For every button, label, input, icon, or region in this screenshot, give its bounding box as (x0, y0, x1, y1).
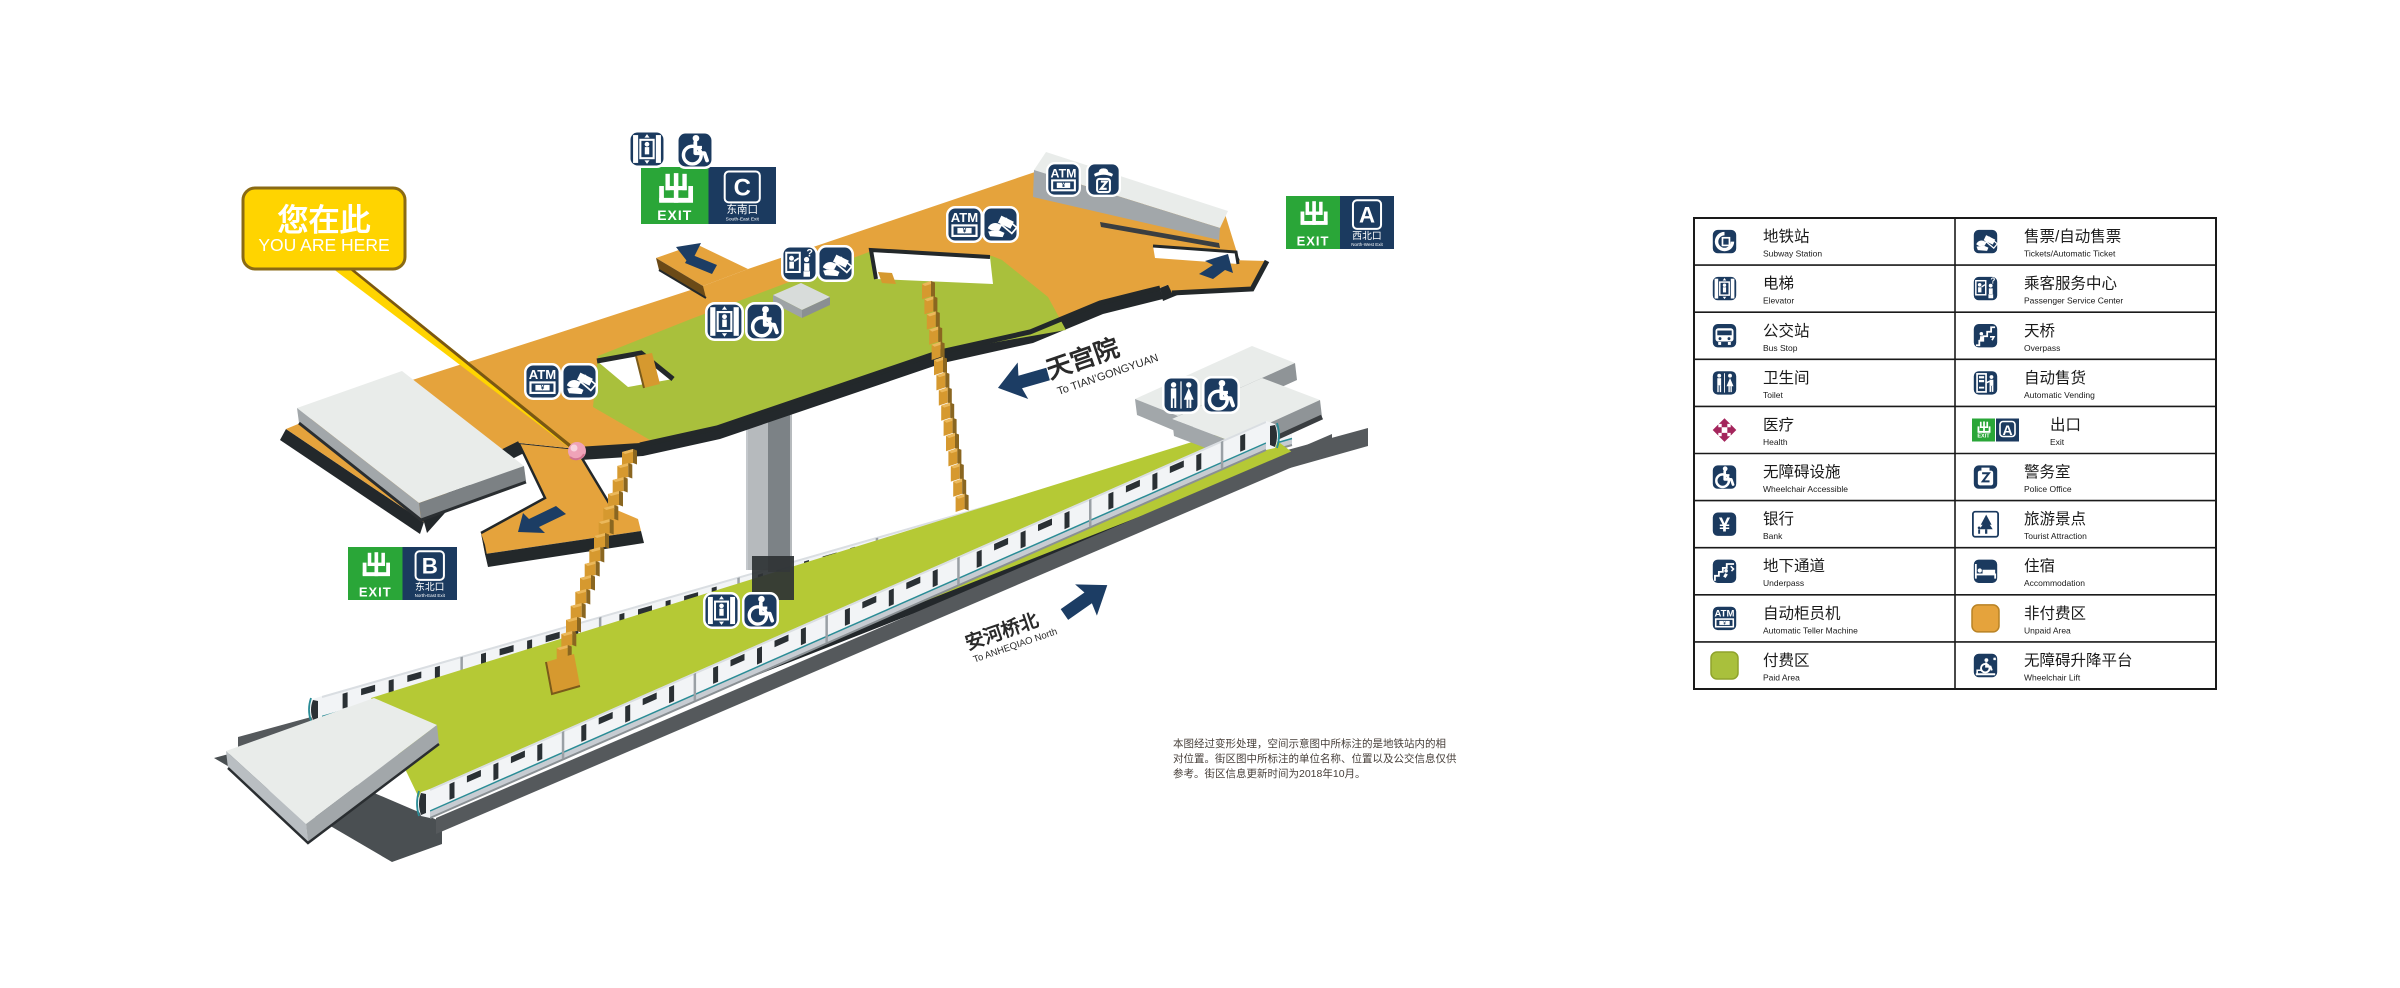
svg-text:自动柜员机: 自动柜员机 (1763, 604, 1841, 622)
svg-text:Toilet: Toilet (1763, 390, 1783, 400)
svg-text:医疗: 医疗 (1763, 416, 1794, 434)
svg-text:天桥: 天桥 (2024, 322, 2056, 340)
svg-text:卫生间: 卫生间 (1763, 369, 1810, 387)
svg-text:C: C (734, 175, 751, 202)
svg-text:Wheelchair Lift: Wheelchair Lift (2024, 673, 2081, 683)
svg-text:EXIT: EXIT (1297, 233, 1330, 248)
svg-text:North-West Exit: North-West Exit (1351, 242, 1383, 247)
svg-text:Automatic Teller Machine: Automatic Teller Machine (1763, 625, 1858, 635)
svg-text:公交站: 公交站 (1763, 322, 1810, 340)
svg-text:YOU ARE HERE: YOU ARE HERE (258, 235, 389, 255)
svg-text:Bank: Bank (1763, 531, 1783, 541)
svg-text:出口: 出口 (2050, 416, 2081, 434)
svg-text:自动售货: 自动售货 (2024, 369, 2086, 387)
svg-text:B: B (422, 554, 438, 579)
svg-text:Tickets/Automatic Ticket: Tickets/Automatic Ticket (2024, 249, 2116, 259)
svg-text:Police Office: Police Office (2024, 484, 2072, 494)
svg-text:EXIT: EXIT (359, 584, 392, 599)
svg-text:North-East Exit: North-East Exit (415, 593, 446, 598)
svg-text:EXIT: EXIT (657, 207, 692, 223)
svg-text:Tourist Attraction: Tourist Attraction (2024, 531, 2087, 541)
svg-text:Bus Stop: Bus Stop (1763, 343, 1798, 353)
svg-text:Subway Station: Subway Station (1763, 249, 1822, 259)
svg-text:Elevator: Elevator (1763, 296, 1794, 306)
svg-text:Health: Health (1763, 437, 1788, 447)
svg-text:无障碍升降平台: 无障碍升降平台 (2024, 652, 2133, 670)
svg-text:对位置。街区图中所标注的单位名称、位置以及公交信息仅供: 对位置。街区图中所标注的单位名称、位置以及公交信息仅供 (1173, 752, 1457, 765)
svg-text:Passenger Service Center: Passenger Service Center (2024, 296, 2123, 306)
svg-text:EXIT: EXIT (1977, 434, 1990, 440)
svg-text:西北口: 西北口 (1352, 230, 1381, 242)
svg-text:Underpass: Underpass (1763, 578, 1804, 588)
svg-text:电梯: 电梯 (1763, 275, 1794, 293)
svg-text:非付费区: 非付费区 (2024, 604, 2086, 622)
svg-text:Wheelchair Accessible: Wheelchair Accessible (1763, 484, 1848, 494)
svg-text:A: A (1359, 203, 1375, 228)
svg-text:地铁站: 地铁站 (1763, 228, 1810, 246)
svg-text:售票/自动售票: 售票/自动售票 (2024, 228, 2121, 246)
svg-text:住宿: 住宿 (2024, 557, 2055, 575)
svg-text:本图经过变形处理，空间示意图中所标注的是地铁站内的相: 本图经过变形处理，空间示意图中所标注的是地铁站内的相 (1173, 737, 1446, 750)
svg-text:参考。街区信息更新时间为2018年10月。: 参考。街区信息更新时间为2018年10月。 (1173, 767, 1366, 780)
svg-text:您在此: 您在此 (278, 203, 371, 238)
svg-text:银行: 银行 (1763, 510, 1794, 528)
svg-text:地下通道: 地下通道 (1763, 557, 1825, 575)
svg-text:South-East Exit: South-East Exit (726, 217, 760, 223)
svg-text:旅游景点: 旅游景点 (2024, 510, 2086, 528)
svg-text:东北口: 东北口 (415, 580, 444, 593)
svg-text:警务室: 警务室 (2024, 463, 2071, 481)
svg-text:无障碍设施: 无障碍设施 (1763, 463, 1841, 481)
svg-text:Overpass: Overpass (2024, 343, 2060, 353)
svg-text:Paid Area: Paid Area (1763, 673, 1800, 683)
svg-text:Automatic Vending: Automatic Vending (2024, 390, 2095, 400)
svg-text:A: A (2002, 422, 2012, 438)
svg-text:Exit: Exit (2050, 437, 2065, 447)
svg-text:乘客服务中心: 乘客服务中心 (2024, 275, 2117, 293)
svg-text:Unpaid Area: Unpaid Area (2024, 625, 2071, 635)
svg-text:付费区: 付费区 (1763, 652, 1810, 670)
svg-text:Accommodation: Accommodation (2024, 578, 2085, 588)
svg-text:东南口: 东南口 (726, 203, 758, 216)
